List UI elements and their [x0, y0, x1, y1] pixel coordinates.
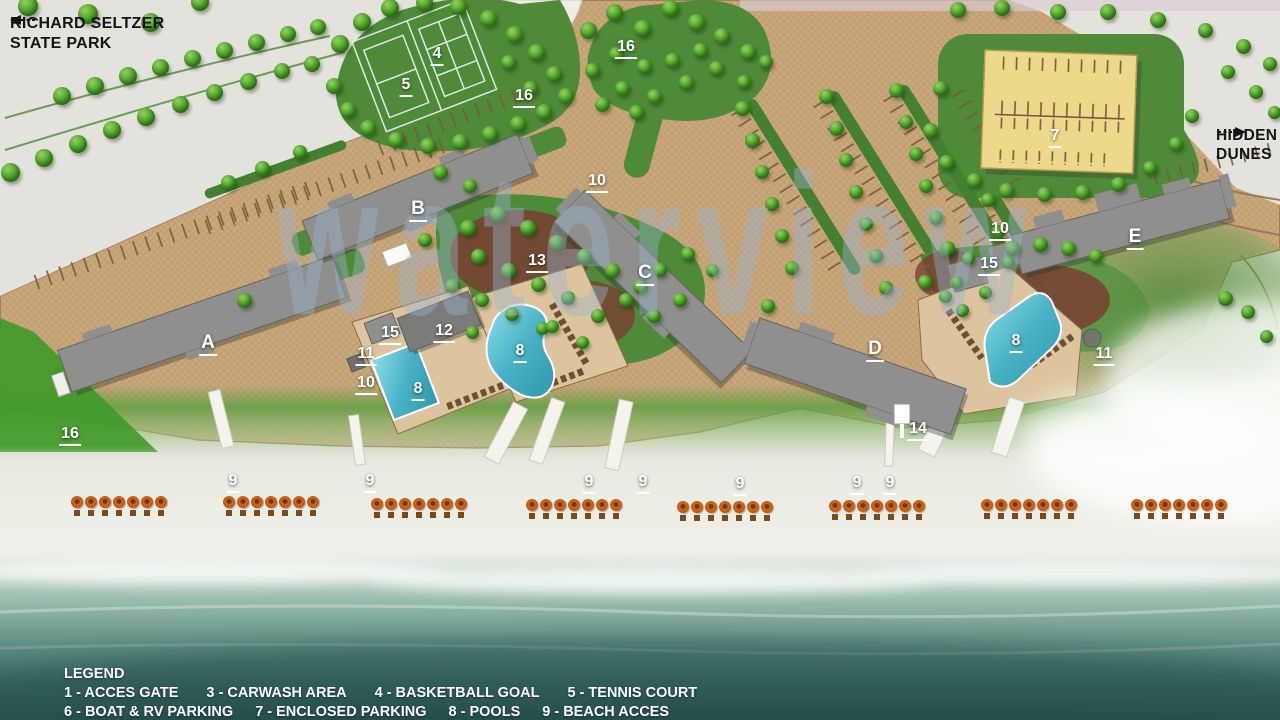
tree-icon [304, 56, 320, 72]
umbrella-icon [843, 500, 856, 522]
tree-icon [310, 19, 326, 35]
umbrella-icon [113, 496, 126, 518]
tree-icon [665, 53, 680, 68]
tree-icon [119, 67, 137, 85]
tree-icon [1002, 256, 1015, 269]
feature-marker: 8 [412, 381, 425, 401]
tree-icon [994, 0, 1010, 16]
hidden-dunes-line2: DUNES [1216, 145, 1277, 164]
tree-icon [86, 77, 104, 95]
resort-site-map: waterview ABCDE4516161671013101581115121… [0, 0, 1280, 720]
feature-marker: 15 [978, 256, 1000, 276]
umbrella-icon [279, 496, 292, 518]
tree-icon [1241, 305, 1255, 319]
umbrella-icon [733, 501, 746, 523]
tree-icon [899, 115, 913, 129]
beach-umbrella-row [526, 499, 623, 521]
tree-icon [714, 28, 730, 44]
tree-icon [240, 73, 257, 90]
feature-marker: 14 [907, 421, 929, 441]
legend-item: 7 - ENCLOSED PARKING [255, 704, 426, 720]
tree-icon [606, 4, 623, 21]
tree-icon [561, 291, 575, 305]
umbrella-icon [871, 500, 884, 522]
tree-icon [1150, 12, 1166, 28]
feature-marker: 9 [583, 474, 596, 494]
legend-line-2: 6 - BOAT & RV PARKING7 - ENCLOSED PARKIN… [64, 704, 772, 720]
umbrella-icon [899, 500, 912, 522]
tree-icon [1, 163, 20, 182]
tree-icon [919, 179, 933, 193]
beach-umbrella-row [677, 501, 774, 523]
tree-icon [326, 78, 342, 94]
tree-icon [577, 249, 592, 264]
tree-icon [274, 63, 290, 79]
tree-icon [929, 211, 943, 225]
tree-icon [647, 89, 662, 104]
tree-icon [755, 165, 769, 179]
tree-icon [673, 293, 687, 307]
tree-icon [1249, 85, 1263, 99]
tree-icon [1100, 4, 1116, 20]
umbrella-icon [568, 499, 581, 521]
tree-icon [546, 66, 562, 82]
umbrella-icon [141, 496, 154, 518]
feature-marker: 10 [355, 375, 377, 395]
feature-marker: 11 [1094, 346, 1115, 366]
umbrella-icon [885, 500, 898, 522]
umbrella-icon [155, 496, 168, 518]
tree-icon [619, 293, 633, 307]
tree-icon [693, 43, 708, 58]
beach-umbrella-row [829, 500, 926, 522]
umbrella-icon [251, 496, 264, 518]
umbrella-icon [455, 498, 468, 520]
tree-icon [629, 105, 644, 120]
tree-icon [490, 206, 506, 222]
tree-icon [819, 89, 834, 104]
legend-item: 3 - CARWASH AREA [206, 685, 346, 701]
tree-icon [939, 290, 952, 303]
tree-icon [1198, 23, 1213, 38]
tree-icon [709, 61, 724, 76]
umbrella-icon [747, 501, 760, 523]
tree-icon [1263, 57, 1277, 71]
tree-icon [237, 293, 252, 308]
tree-icon [482, 126, 498, 142]
tree-icon [679, 75, 694, 90]
umbrella-icon [427, 498, 440, 520]
building-label: E [1127, 227, 1144, 250]
tree-icon [420, 138, 436, 154]
umbrella-icon [223, 496, 236, 518]
tree-icon [248, 34, 265, 51]
tree-icon [688, 14, 705, 31]
feature-marker: 16 [513, 88, 535, 108]
tree-icon [293, 145, 307, 159]
tree-icon [580, 22, 597, 39]
umbrella-icon [237, 496, 250, 518]
tree-icon [137, 108, 155, 126]
tree-icon [331, 35, 349, 53]
umbrella-icon [1131, 499, 1144, 521]
umbrella-icon [995, 499, 1008, 521]
tree-icon [576, 336, 589, 349]
feature-marker: 9 [734, 476, 747, 496]
umbrella-icon [71, 496, 84, 518]
feature-marker: 9 [637, 474, 650, 494]
tree-icon [869, 249, 883, 263]
tree-icon [1111, 177, 1126, 192]
feature-marker: 9 [851, 475, 864, 495]
tree-icon [909, 147, 923, 161]
umbrella-icon [1051, 499, 1064, 521]
tree-icon [979, 286, 992, 299]
legend-item: 4 - BASKETBALL GOAL [375, 685, 540, 701]
tree-icon [505, 307, 519, 321]
tree-icon [216, 42, 233, 59]
umbrella-icon [441, 498, 454, 520]
tree-icon [531, 277, 546, 292]
tree-icon [761, 299, 775, 313]
building-label: A [199, 333, 217, 356]
umbrella-icon [1065, 499, 1078, 521]
feature-marker: 15 [379, 325, 401, 345]
umbrella-icon [981, 499, 994, 521]
tree-icon [829, 121, 844, 136]
tree-icon [1075, 185, 1090, 200]
tree-icon [360, 120, 376, 136]
tree-icon [35, 149, 53, 167]
tree-icon [859, 217, 873, 231]
feature-marker: 9 [364, 473, 377, 493]
tree-icon [255, 161, 270, 176]
umbrella-icon [610, 499, 623, 521]
tree-icon [706, 264, 719, 277]
tree-icon [775, 229, 789, 243]
tree-icon [939, 155, 954, 170]
umbrella-icon [1159, 499, 1172, 521]
tree-icon [967, 173, 982, 188]
feature-marker: 9 [227, 473, 240, 493]
tree-icon [452, 134, 468, 150]
tree-icon [1037, 187, 1052, 202]
umbrella-icon [705, 501, 718, 523]
tree-icon [69, 135, 87, 153]
feature-marker: 4 [431, 46, 444, 66]
tree-icon [536, 104, 552, 120]
tree-icon [353, 13, 371, 31]
tree-icon [737, 75, 751, 89]
umbrella-icon [1037, 499, 1050, 521]
umbrella-icon [1215, 499, 1228, 521]
building-label: B [409, 199, 427, 222]
tree-icon [501, 263, 516, 278]
umbrella-icon [413, 498, 426, 520]
umbrella-icon [1145, 499, 1158, 521]
tree-icon [1236, 39, 1251, 54]
tree-icon [1033, 237, 1048, 252]
feature-marker: 10 [586, 173, 608, 193]
tree-icon [520, 220, 536, 236]
umbrella-icon [1187, 499, 1200, 521]
tree-icon [558, 88, 574, 104]
tree-icon [450, 0, 467, 15]
tree-icon [280, 26, 296, 42]
tree-icon [999, 183, 1014, 198]
feature-marker: 10 [989, 221, 1011, 241]
tree-icon [605, 263, 620, 278]
tree-icon [460, 220, 476, 236]
tree-icon [879, 281, 893, 295]
feature-marker: 8 [1010, 333, 1023, 353]
tree-icon [549, 235, 564, 250]
tree-icon [1268, 106, 1280, 119]
umbrella-icon [85, 496, 98, 518]
tree-icon [735, 101, 750, 116]
feature-marker: 8 [514, 343, 527, 363]
tree-icon [433, 165, 448, 180]
feature-marker: 7 [1049, 128, 1062, 148]
tree-icon [418, 233, 432, 247]
tree-icon [206, 84, 223, 101]
umbrella-icon [1023, 499, 1036, 521]
tree-icon [941, 241, 955, 255]
enclosed-parking-building [981, 50, 1142, 179]
tree-icon [745, 133, 760, 148]
tree-icon [53, 87, 71, 105]
umbrella-icon [1009, 499, 1022, 521]
umbrella-icon [526, 499, 539, 521]
umbrella-icon [371, 498, 384, 520]
legend-item: 9 - BEACH ACCES [542, 704, 669, 720]
state-park-label: RICHARD SELTZER STATE PARK [10, 14, 164, 62]
umbrella-icon [691, 501, 704, 523]
tree-icon [528, 44, 545, 61]
tree-icon [839, 153, 853, 167]
umbrella-icon [761, 501, 774, 523]
umbrella-icon [1201, 499, 1214, 521]
tree-icon [981, 193, 995, 207]
tree-icon [923, 123, 938, 138]
tree-icon [918, 275, 932, 289]
building-label: D [866, 339, 884, 362]
tree-icon [950, 2, 966, 18]
legend-item: 1 - ACCES GATE [64, 685, 178, 701]
umbrella-icon [99, 496, 112, 518]
tree-icon [103, 121, 121, 139]
legend-item: 8 - POOLS [449, 704, 521, 720]
tree-icon [956, 304, 969, 317]
tree-icon [1061, 241, 1076, 256]
umbrella-icon [265, 496, 278, 518]
tree-icon [1185, 109, 1199, 123]
feature-marker: 9 [884, 475, 897, 495]
tree-icon [1050, 4, 1066, 20]
hidden-dunes-label: HIDDEN DUNES [1216, 126, 1277, 173]
tree-icon [591, 309, 605, 323]
tree-icon [1169, 137, 1183, 151]
tree-icon [637, 59, 652, 74]
tree-icon [501, 55, 516, 70]
tree-icon [1221, 65, 1235, 79]
tree-icon [634, 20, 651, 37]
tree-icon [1260, 330, 1273, 343]
umbrella-icon [307, 496, 320, 518]
tree-icon [1218, 291, 1233, 306]
umbrella-icon [677, 501, 690, 523]
beach-umbrella-row [1131, 499, 1228, 521]
tree-icon [221, 175, 236, 190]
beach-umbrella-row [71, 496, 168, 518]
tree-icon [510, 116, 526, 132]
tree-icon [172, 96, 189, 113]
tree-icon [585, 63, 600, 78]
umbrella-icon [554, 499, 567, 521]
tree-icon [1143, 161, 1157, 175]
tree-icon [785, 261, 799, 275]
beach-umbrella-row [981, 499, 1078, 521]
tree-icon [340, 102, 356, 118]
legend-item: 5 - TENNIS COURT [567, 685, 697, 701]
umbrella-icon [385, 498, 398, 520]
tree-icon [653, 263, 667, 277]
tree-icon [506, 26, 523, 43]
tree-icon [849, 185, 863, 199]
feature-marker: 12 [433, 323, 455, 343]
tree-icon [662, 0, 679, 17]
tree-icon [480, 10, 497, 27]
feature-marker: 16 [59, 426, 81, 446]
state-park-line2: STATE PARK [10, 34, 164, 54]
umbrella-icon [1173, 499, 1186, 521]
beach-umbrella-row [371, 498, 468, 520]
umbrella-icon [596, 499, 609, 521]
tree-icon [681, 247, 695, 261]
tree-icon [471, 249, 486, 264]
feature-marker: 11 [356, 346, 377, 366]
umbrella-icon [719, 501, 732, 523]
tree-icon [950, 276, 963, 289]
tree-icon [889, 83, 904, 98]
tree-icon [765, 197, 779, 211]
tree-icon [740, 44, 756, 60]
umbrella-icon [127, 496, 140, 518]
umbrella-icon [857, 500, 870, 522]
tree-icon [1005, 241, 1020, 256]
tree-icon [416, 0, 433, 11]
legend: LEGEND 1 - ACCES GATE3 - CARWASH AREA4 -… [64, 666, 772, 720]
umbrella-icon [582, 499, 595, 521]
tree-icon [615, 81, 630, 96]
tree-icon [475, 293, 489, 307]
tree-icon [647, 309, 661, 323]
tree-icon [463, 179, 477, 193]
tree-icon [1089, 249, 1103, 263]
legend-item: 6 - BOAT & RV PARKING [64, 704, 233, 720]
tree-icon [184, 50, 201, 67]
feature-marker: 5 [400, 77, 413, 97]
tree-icon [388, 132, 404, 148]
feature-marker: 16 [615, 39, 637, 59]
legend-title: LEGEND [64, 666, 772, 682]
tree-icon [445, 279, 459, 293]
tree-icon [933, 81, 948, 96]
building-label: C [636, 263, 654, 286]
tree-icon [962, 252, 975, 265]
tree-icon [595, 97, 610, 112]
tree-icon [759, 55, 773, 69]
umbrella-icon [829, 500, 842, 522]
tree-icon [546, 320, 559, 333]
beach-umbrella-row [223, 496, 320, 518]
feature-marker: 13 [526, 253, 548, 273]
legend-line-1: 1 - ACCES GATE3 - CARWASH AREA4 - BASKET… [64, 685, 772, 701]
umbrella-icon [399, 498, 412, 520]
umbrella-icon [913, 500, 926, 522]
tree-icon [466, 326, 479, 339]
umbrella-icon [293, 496, 306, 518]
umbrella-icon [540, 499, 553, 521]
